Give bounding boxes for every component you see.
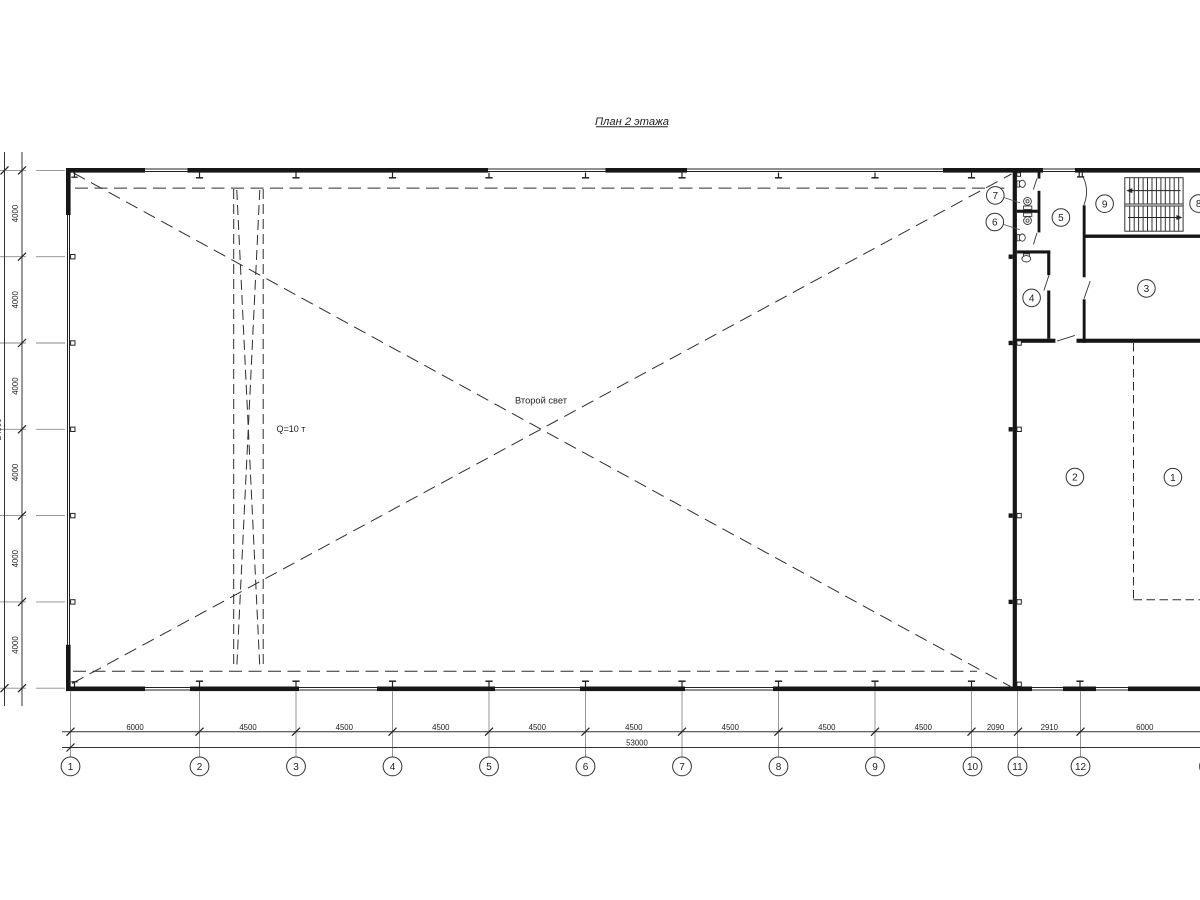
svg-text:2: 2 — [1072, 473, 1078, 484]
svg-text:4500: 4500 — [432, 723, 450, 732]
svg-text:4500: 4500 — [818, 723, 836, 732]
svg-text:10: 10 — [967, 762, 979, 773]
svg-text:Q=10 т: Q=10 т — [277, 424, 306, 434]
svg-text:24000: 24000 — [0, 418, 3, 440]
svg-text:8: 8 — [776, 762, 782, 773]
svg-text:12: 12 — [1075, 762, 1087, 773]
svg-text:6000: 6000 — [126, 723, 144, 732]
svg-text:6: 6 — [992, 218, 998, 229]
svg-text:4000: 4000 — [11, 463, 20, 481]
svg-text:4500: 4500 — [336, 723, 354, 732]
svg-text:4000: 4000 — [11, 636, 20, 654]
svg-text:11: 11 — [1012, 762, 1023, 773]
svg-text:2910: 2910 — [1041, 723, 1059, 732]
svg-text:4500: 4500 — [239, 723, 257, 732]
svg-text:5: 5 — [1058, 213, 1064, 224]
svg-text:6000: 6000 — [1136, 723, 1154, 732]
svg-text:8: 8 — [1196, 199, 1200, 210]
svg-text:3: 3 — [293, 762, 299, 773]
svg-text:4000: 4000 — [11, 290, 20, 308]
svg-text:4500: 4500 — [722, 723, 740, 732]
svg-text:4500: 4500 — [529, 723, 547, 732]
svg-text:4000: 4000 — [11, 204, 20, 222]
svg-text:4500: 4500 — [915, 723, 933, 732]
svg-text:4000: 4000 — [11, 377, 20, 395]
svg-text:7: 7 — [993, 191, 999, 202]
svg-text:5: 5 — [486, 762, 492, 773]
svg-text:6: 6 — [583, 762, 589, 773]
svg-text:7: 7 — [679, 762, 685, 773]
svg-text:2090: 2090 — [987, 723, 1005, 732]
svg-text:4500: 4500 — [625, 723, 643, 732]
svg-text:1: 1 — [68, 762, 74, 773]
svg-text:3: 3 — [1144, 284, 1150, 295]
svg-text:4: 4 — [390, 762, 396, 773]
svg-text:53000: 53000 — [626, 739, 648, 748]
svg-text:2: 2 — [197, 762, 203, 773]
svg-text:Второй свет: Второй свет — [515, 396, 568, 406]
svg-text:9: 9 — [1102, 199, 1108, 210]
svg-text:1: 1 — [1170, 473, 1176, 484]
svg-text:9: 9 — [872, 762, 878, 773]
svg-text:4000: 4000 — [11, 549, 20, 567]
svg-text:4: 4 — [1029, 294, 1035, 305]
